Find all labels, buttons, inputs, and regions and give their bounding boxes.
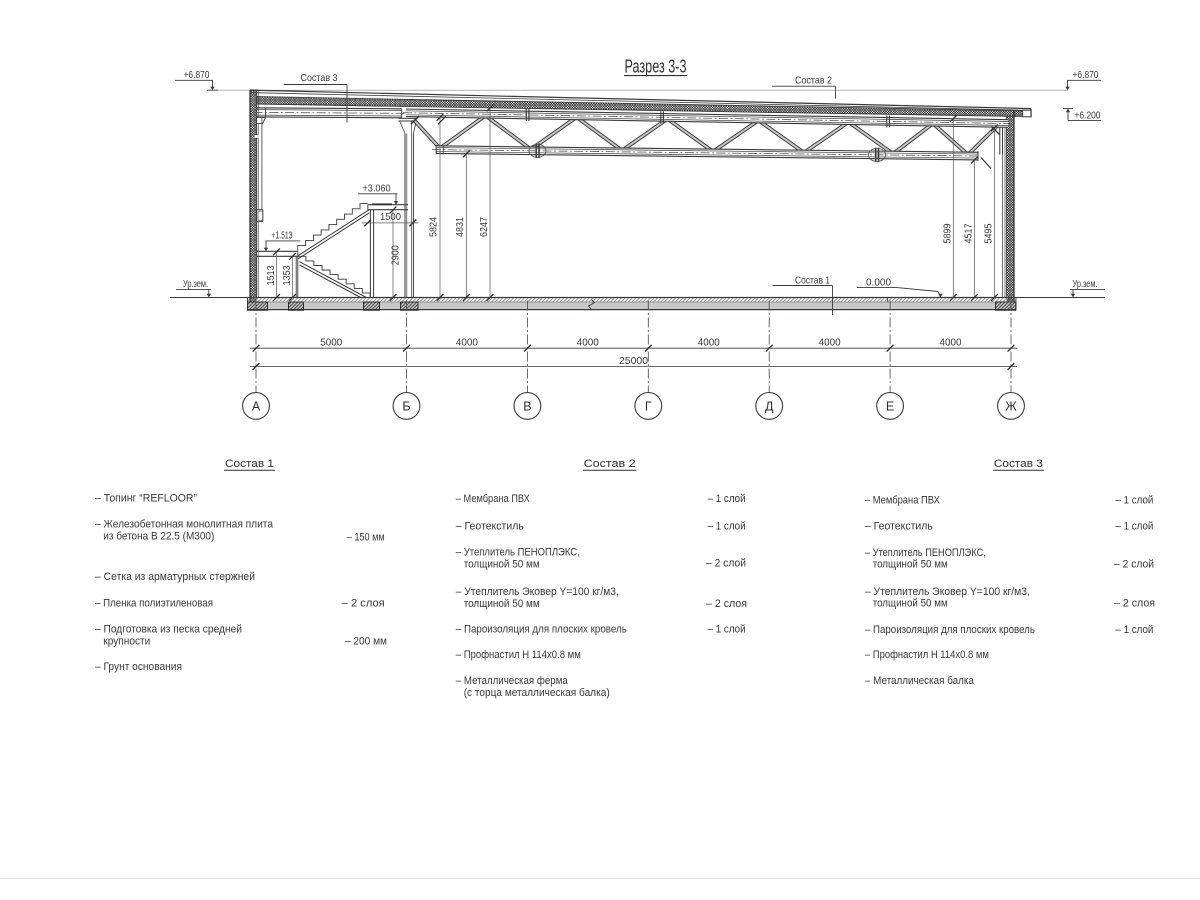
svg-text:+1.513: +1.513 [272,230,293,242]
svg-text:– 1 слой: – 1 слой [708,520,746,532]
svg-text:5824: 5824 [428,217,440,237]
svg-text:А: А [252,399,261,413]
svg-text:– Геотекстиль: – Геотекстиль [865,520,933,532]
svg-text:– 150 мм: – 150 мм [347,531,385,543]
svg-text:– Утеплитель Эковер Y=100 кг/м: – Утеплитель Эковер Y=100 кг/м3, [456,586,619,598]
svg-text:толщиной 50 мм: толщиной 50 мм [464,598,540,610]
svg-text:– Утеплитель ПЕНОПЛЭКС,: – Утеплитель ПЕНОПЛЭКС, [865,547,986,559]
svg-text:Состав 3: Состав 3 [301,72,338,84]
svg-text:В: В [523,399,531,413]
svg-text:из бетона В 22.5 (М300): из бетона В 22.5 (М300) [103,531,214,543]
svg-text:– Подготовка из песка средней: – Подготовка из песка средней [95,623,242,635]
svg-text:4000: 4000 [456,336,478,348]
svg-text:– 1 слой: – 1 слой [708,624,746,636]
svg-text:Состав 1: Состав 1 [795,275,830,287]
svg-text:– 2 слоя: – 2 слоя [706,598,747,610]
svg-text:5899: 5899 [942,223,954,243]
svg-text:5495: 5495 [983,223,995,243]
svg-text:Ур.зем.: Ур.зем. [183,279,208,290]
svg-text:1353: 1353 [281,265,293,285]
svg-text:– Мембрана ПВХ: – Мембрана ПВХ [865,495,940,507]
svg-text:4517: 4517 [963,223,975,243]
svg-text:2900: 2900 [390,245,402,265]
svg-text:+6.870: +6.870 [1073,69,1099,81]
svg-text:– Пароизоляция для плоских кро: – Пароизоляция для плоских кровель [456,624,627,636]
svg-text:– 2 слоя: – 2 слоя [1114,598,1155,610]
svg-text:– Металлическая балка: – Металлическая балка [865,675,974,687]
svg-text:– Пленка полиэтиленовая: – Пленка полиэтиленовая [95,598,213,610]
svg-text:толщиной 50 мм: толщиной 50 мм [873,598,948,610]
svg-text:– 1 слой: – 1 слой [708,493,746,505]
svg-text:– Сетка из арматурных стержней: – Сетка из арматурных стержней [95,571,255,583]
svg-text:– 2 слоя: – 2 слоя [342,598,385,610]
svg-text:Состав 3: Состав 3 [994,458,1043,470]
svg-text:+3.060: +3.060 [363,183,391,195]
svg-text:– Утеплитель ПЕНОПЛЭКС,: – Утеплитель ПЕНОПЛЭКС, [456,547,580,559]
svg-text:4000: 4000 [698,336,720,348]
svg-text:(с торца металлическая балка): (с торца металлическая балка) [464,687,610,699]
svg-text:– Профнастил Н 114х0.8 мм: – Профнастил Н 114х0.8 мм [456,649,581,661]
svg-text:толщиной 50 мм: толщиной 50 мм [873,559,948,571]
svg-text:4000: 4000 [819,336,841,348]
svg-text:25000: 25000 [619,355,648,367]
svg-text:– Геотекстиль: – Геотекстиль [456,520,524,532]
svg-text:– Мембрана ПВХ: – Мембрана ПВХ [456,493,530,505]
svg-text:– Железобетонная монолитная п: – Железобетонная монолитная плита [95,519,273,531]
svg-text:– 1 слой: – 1 слой [1115,520,1153,532]
svg-text:Е: Е [886,399,894,413]
svg-text:Состав 2: Состав 2 [584,458,636,470]
svg-text:– Профнастил Н 114х0.8 мм: – Профнастил Н 114х0.8 мм [865,649,989,661]
svg-text:5000: 5000 [320,336,342,348]
svg-text:6247: 6247 [478,217,490,237]
svg-text:+6.870: +6.870 [184,69,210,81]
svg-text:4000: 4000 [940,336,962,348]
svg-text:1513: 1513 [265,265,277,285]
svg-text:4831: 4831 [454,217,466,237]
svg-text:крупности: крупности [103,635,150,647]
svg-text:– 2 слой: – 2 слой [706,558,746,570]
svg-text:– 200 мм: – 200 мм [345,635,387,647]
svg-text:Ур.зем.: Ур.зем. [1073,279,1098,290]
svg-text:Ж: Ж [1005,399,1017,413]
svg-text:толщиной 50 мм: толщиной 50 мм [464,558,540,570]
svg-text:Д: Д [765,399,774,413]
svg-text:1500: 1500 [380,211,401,223]
svg-text:Состав 1: Состав 1 [225,458,274,470]
svg-text:– Грунт основания: – Грунт основания [95,661,182,673]
svg-text:– Топинг “REFLOOR”: – Топинг “REFLOOR” [95,493,197,505]
svg-text:Г: Г [645,399,652,413]
svg-text:0.000: 0.000 [866,276,891,288]
svg-text:– Пароизоляция для плоских кро: – Пароизоляция для плоских кровель [865,624,1035,636]
svg-text:4000: 4000 [577,336,599,348]
svg-text:– Утеплитель Эковер Y=100 кг/м: – Утеплитель Эковер Y=100 кг/м3, [865,586,1030,598]
svg-text:– 1 слой: – 1 слой [1115,624,1153,636]
svg-text:– 1 слой: – 1 слой [1115,495,1153,507]
svg-text:Б: Б [402,399,410,413]
svg-text:– 2 слой: – 2 слой [1114,559,1154,571]
svg-text:– Металлическая ферма: – Металлическая ферма [456,675,568,687]
svg-text:Разрез 3-3: Разрез 3-3 [625,57,687,77]
svg-text:+6.200: +6.200 [1075,109,1101,121]
svg-text:Состав 2: Состав 2 [795,75,832,87]
